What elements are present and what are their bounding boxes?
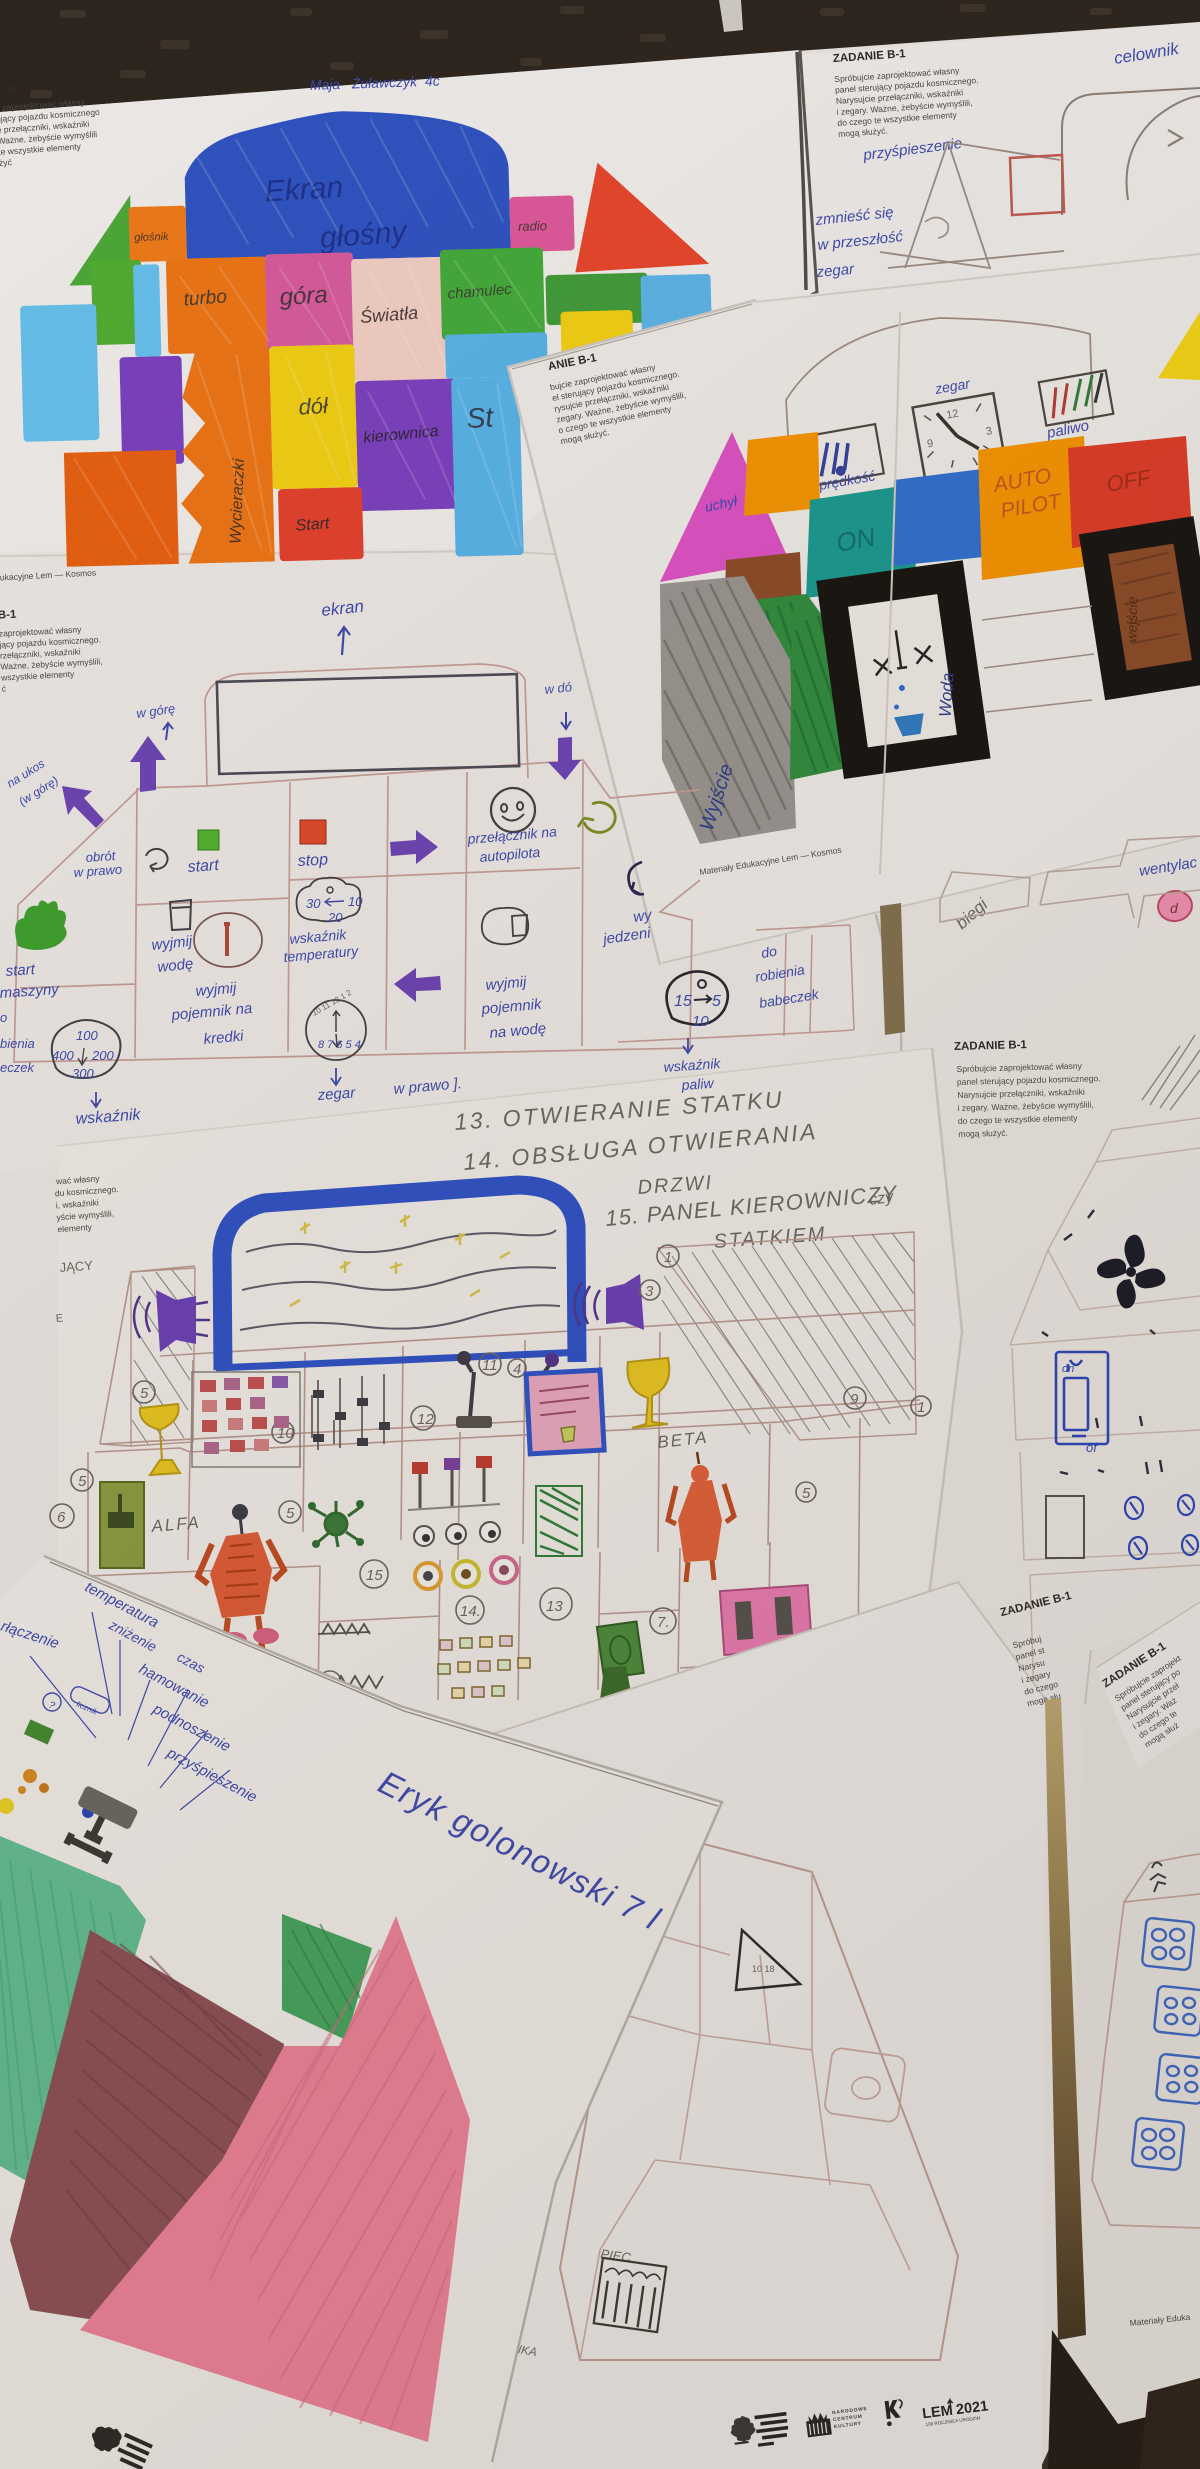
svg-text:Start: Start (295, 515, 331, 535)
svg-text:3: 3 (645, 1283, 654, 1300)
svg-text:12: 12 (417, 1411, 434, 1428)
svg-text:B-1: B-1 (0, 609, 17, 622)
svg-text:stop: stop (297, 851, 328, 870)
svg-text:bienia: bienia (0, 1036, 35, 1051)
svg-text:o: o (0, 1010, 7, 1025)
svg-text:St: St (465, 401, 495, 434)
svg-text:start: start (187, 857, 220, 876)
svg-text:of: of (1086, 1440, 1098, 1455)
svg-text:wejście: wejście (1124, 596, 1141, 642)
svg-text:E: E (55, 1313, 63, 1325)
svg-text:4: 4 (513, 1361, 521, 1378)
svg-text:100: 100 (76, 1028, 98, 1043)
svg-text:zegar: zegar (815, 261, 856, 281)
svg-text:radio: radio (518, 218, 547, 234)
svg-text:13: 13 (546, 1598, 563, 1615)
svg-text:E B-1: E B-1 (0, 82, 26, 96)
svg-text:11: 11 (482, 1357, 498, 1374)
svg-text:Ekran: Ekran (264, 171, 344, 209)
svg-text:mogą służyć.: mogą służyć. (958, 1128, 1008, 1139)
svg-text:15: 15 (674, 993, 692, 1010)
svg-text:30: 30 (306, 896, 321, 911)
svg-text:1: 1 (664, 1249, 672, 1266)
svg-text:6: 6 (57, 1509, 66, 1526)
svg-text:200: 200 (91, 1048, 114, 1063)
svg-text:8 7 6 5 4: 8 7 6 5 4 (318, 1039, 361, 1051)
svg-text:5: 5 (712, 993, 721, 1010)
svg-text:300: 300 (72, 1066, 94, 1081)
svg-text:9: 9 (850, 1391, 859, 1408)
svg-text:Woda: Woda (936, 672, 958, 718)
svg-text:5: 5 (802, 1485, 811, 1502)
svg-text:kredki: kredki (203, 1028, 245, 1048)
svg-text:zegar: zegar (316, 1084, 357, 1104)
svg-text:15: 15 (366, 1567, 383, 1584)
svg-text:5: 5 (78, 1473, 87, 1490)
svg-text:1: 1 (917, 1399, 925, 1416)
svg-text:wyjmij: wyjmij (195, 979, 238, 1000)
svg-text:eczek: eczek (0, 1060, 35, 1075)
svg-text:on: on (1062, 1363, 1074, 1375)
svg-text:do: do (760, 943, 778, 961)
svg-text:żyć: żyć (0, 157, 13, 168)
svg-text:10: 10 (348, 894, 363, 909)
svg-text:7.: 7. (657, 1614, 670, 1631)
svg-text:400: 400 (52, 1048, 74, 1063)
svg-text:5: 5 (286, 1505, 295, 1522)
svg-text:14.: 14. (460, 1603, 481, 1620)
svg-text:góra: góra (279, 281, 329, 311)
svg-text:wyjmij: wyjmij (485, 973, 528, 994)
svg-text:głośnik: głośnik (134, 231, 169, 244)
svg-text:w dó: w dó (544, 679, 573, 697)
svg-text:d: d (1170, 900, 1179, 916)
svg-text:12: 12 (945, 408, 959, 422)
svg-text:JĄCY: JĄCY (59, 1258, 94, 1275)
svg-text:10 18: 10 18 (752, 1964, 775, 1974)
svg-text:ZADANIE B-1: ZADANIE B-1 (954, 1039, 1028, 1053)
svg-text:start: start (5, 961, 36, 980)
svg-text:10: 10 (692, 1013, 709, 1030)
svg-text:5: 5 (140, 1385, 149, 1402)
svg-text:20: 20 (327, 910, 343, 925)
